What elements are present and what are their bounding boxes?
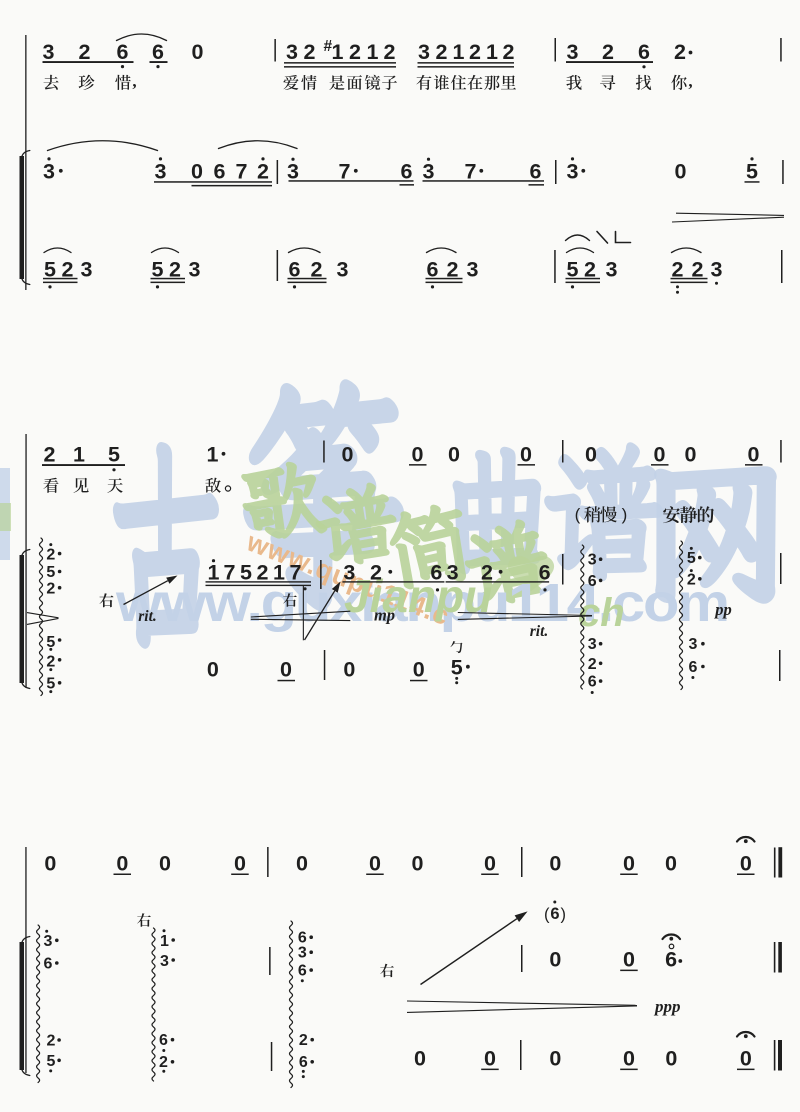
svg-text:5: 5 (46, 564, 55, 581)
svg-text:3: 3 (44, 933, 53, 950)
svg-text:6: 6 (588, 573, 597, 590)
svg-text:pp: pp (713, 600, 732, 619)
svg-text:6: 6 (298, 963, 307, 980)
svg-text:0: 0 (280, 658, 292, 682)
svg-text:2: 2 (46, 1033, 55, 1050)
svg-text:5: 5 (451, 656, 463, 680)
svg-text:6: 6 (44, 956, 53, 973)
svg-text:mp: mp (374, 606, 395, 625)
svg-text:215: 215 (44, 443, 121, 467)
svg-text:2: 2 (299, 1032, 308, 1049)
svg-text:1: 1 (160, 933, 169, 950)
svg-text:Jianpu: Jianpu (344, 570, 492, 622)
svg-text:3: 3 (160, 953, 169, 970)
svg-text:6: 6 (159, 1032, 168, 1049)
svg-text:0: 0 (675, 160, 687, 184)
svg-text:3: 3 (298, 945, 307, 962)
svg-text:0: 0 (207, 658, 219, 682)
svg-text:6: 6 (299, 1054, 308, 1071)
svg-text:5: 5 (687, 550, 696, 567)
svg-text:2: 2 (159, 1054, 168, 1071)
svg-text:2: 2 (588, 656, 597, 673)
svg-text:5: 5 (746, 160, 758, 184)
svg-text:2: 2 (46, 546, 55, 563)
svg-text:3: 3 (588, 636, 597, 653)
svg-text:2: 2 (46, 580, 55, 597)
svg-text:rit.: rit. (138, 608, 157, 625)
svg-text:5: 5 (46, 1053, 55, 1070)
svg-text:0: 0 (623, 947, 635, 971)
svg-text:ppp: ppp (653, 997, 681, 1016)
svg-text:5: 5 (46, 676, 55, 693)
svg-text:rit.: rit. (530, 623, 549, 640)
svg-text:6: 6 (550, 905, 559, 923)
svg-text:6: 6 (588, 674, 597, 691)
svg-text:0: 0 (413, 658, 425, 682)
svg-text:3: 3 (43, 160, 55, 184)
svg-text:2: 2 (46, 653, 55, 670)
svg-text:6: 6 (665, 947, 677, 971)
svg-text:0: 0 (343, 658, 355, 682)
svg-text:): ) (560, 906, 566, 924)
svg-text:(: ( (575, 505, 581, 524)
svg-text:ch: ch (578, 591, 625, 635)
svg-text:): ) (622, 505, 628, 524)
svg-text:2: 2 (687, 571, 696, 588)
svg-text:3: 3 (567, 160, 579, 184)
svg-text:(: ( (544, 906, 550, 924)
svg-text:1: 1 (207, 443, 219, 467)
svg-text:6: 6 (688, 659, 697, 676)
svg-text:0: 0 (549, 947, 561, 971)
svg-text:,: , (132, 72, 136, 91)
svg-text:3: 3 (688, 636, 697, 653)
svg-text:,: , (688, 72, 692, 91)
svg-text:3: 3 (588, 552, 597, 569)
